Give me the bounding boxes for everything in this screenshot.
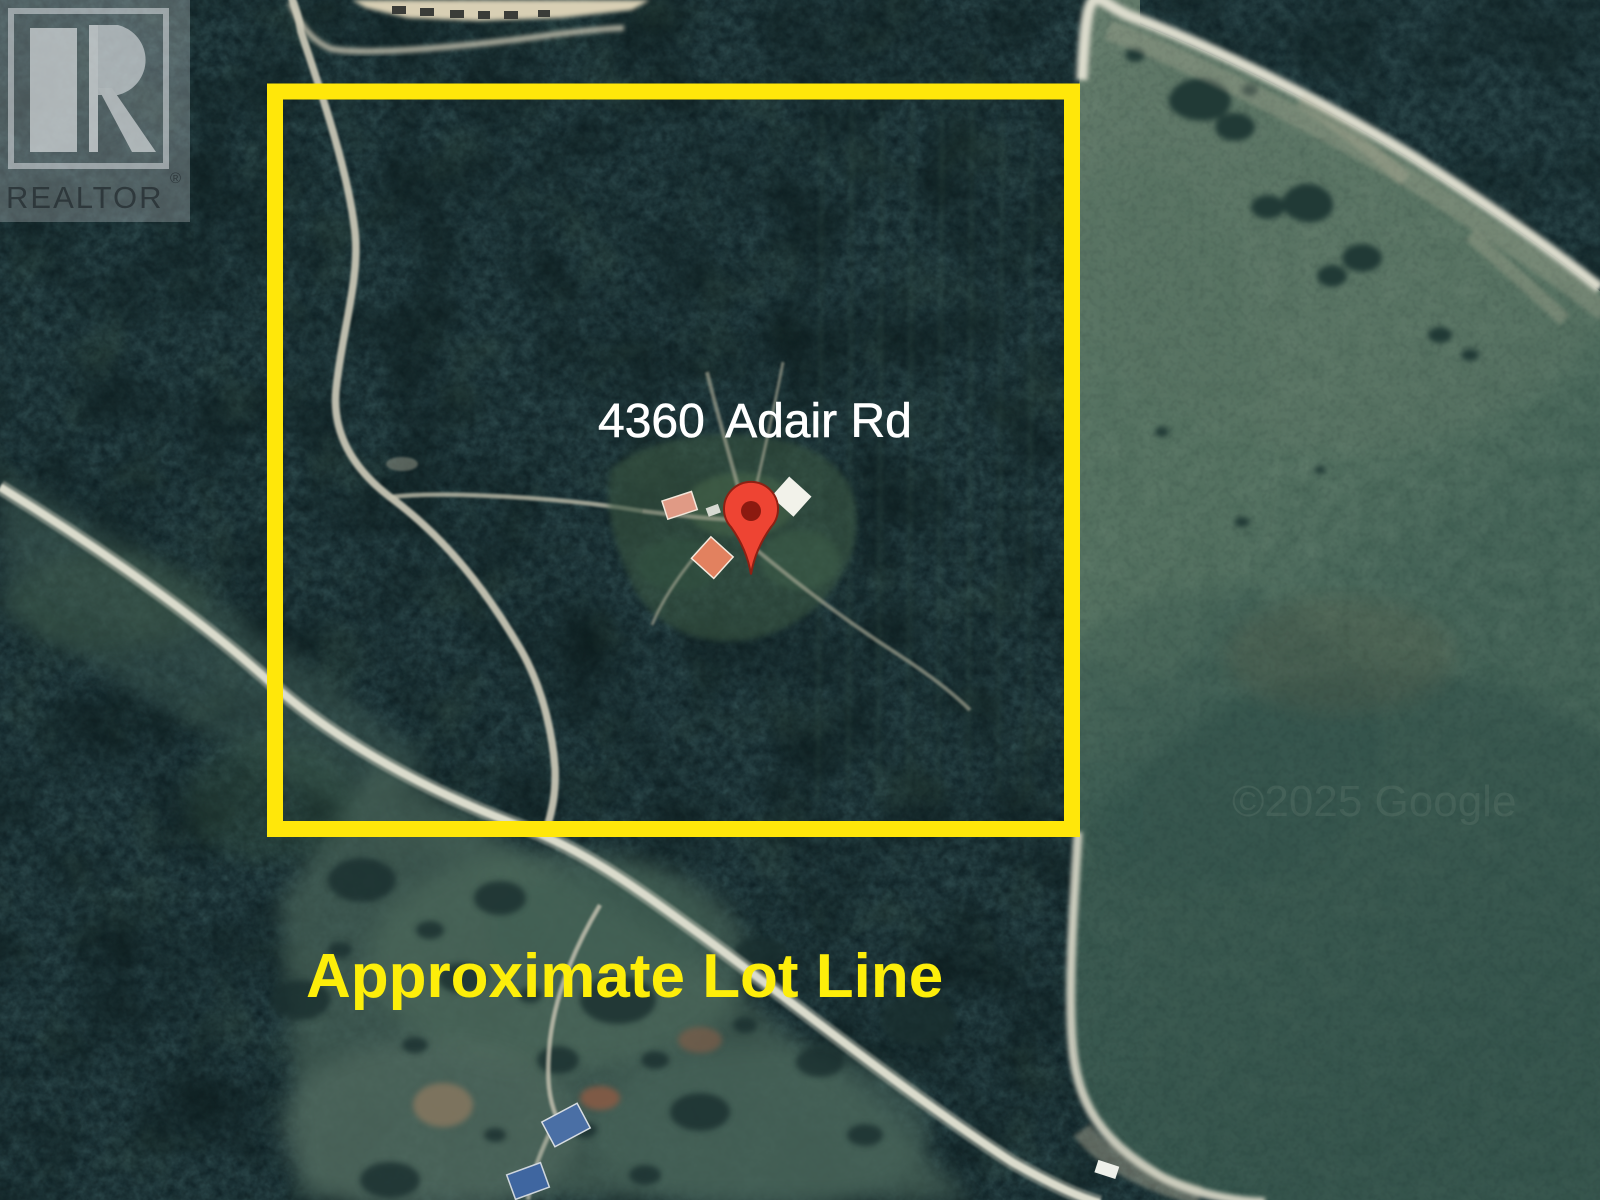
svg-text:Approximate Lot Line: Approximate Lot Line [306,942,943,1011]
svg-text:©2025 Google: ©2025 Google [1232,777,1516,826]
svg-text:REALTOR: REALTOR [6,180,164,215]
svg-text:®: ® [170,170,181,187]
svg-text:4360 Adair Rd: 4360 Adair Rd [598,395,912,448]
